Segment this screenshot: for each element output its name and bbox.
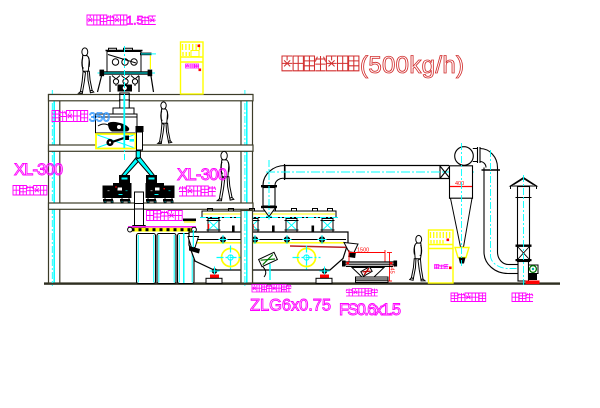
svg-text:ZLG6x0.75: ZLG6x0.75: [250, 297, 331, 315]
svg-text:XL-300: XL-300: [177, 166, 227, 184]
svg-text:(500kg/h): (500kg/h): [360, 52, 464, 79]
svg-text:FS0.6x1.5: FS0.6x1.5: [339, 301, 401, 319]
svg-text:350: 350: [89, 111, 110, 125]
svg-text:XL-300: XL-300: [14, 161, 63, 179]
svg-text:1.5: 1.5: [127, 14, 144, 28]
svg-text:400: 400: [455, 181, 464, 187]
svg-text:1500: 1500: [357, 248, 369, 254]
